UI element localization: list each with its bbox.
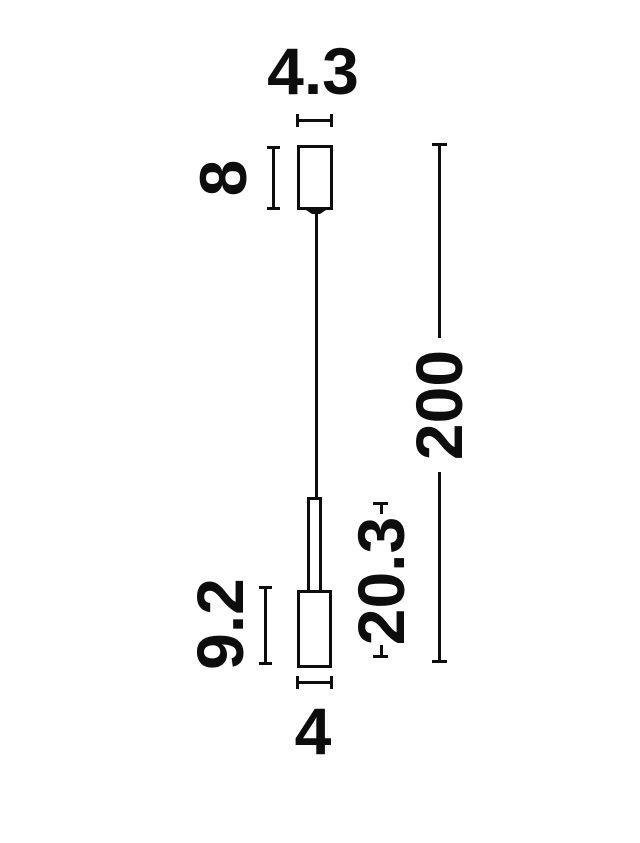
head-width-dim-tick-right — [330, 676, 333, 689]
canopy-width-dim-line — [297, 119, 332, 122]
canopy-height-dim-tick-bottom — [267, 207, 280, 210]
head-height-dim-line — [264, 588, 267, 665]
lower-assembly-dim-stem-top — [380, 502, 383, 514]
canopy-height-dim-line — [272, 147, 275, 209]
canopy-height-dim-tick-top — [267, 146, 280, 149]
head-height-dim-tick-bottom — [259, 662, 272, 665]
total-drop-dim-tick-bottom — [432, 660, 447, 663]
head-width-dim-tick-left — [296, 676, 299, 689]
canopy-height-label: 8 — [190, 160, 256, 197]
total-drop-label: 200 — [406, 350, 472, 460]
head-width-dim-line — [297, 681, 332, 684]
dimension-drawing-canvas: 4.3 8 9.2 4 20.3 200 — [0, 0, 640, 843]
canopy-width-dim-tick-left — [296, 114, 299, 127]
head-height-label: 9.2 — [187, 578, 253, 670]
total-drop-dim-line-upper — [438, 145, 441, 338]
head-width-label: 4 — [295, 698, 332, 764]
canopy-width-dim-tick-right — [330, 114, 333, 127]
total-drop-dim-line-lower — [438, 472, 441, 662]
lower-assembly-dim-tick-bottom — [373, 655, 388, 658]
lamp-head-outline — [297, 590, 332, 668]
suspension-cable — [315, 214, 319, 500]
canopy-outline — [297, 145, 333, 210]
head-height-dim-tick-top — [259, 586, 272, 589]
stem-tube-outline — [307, 497, 322, 593]
canopy-width-label: 4.3 — [267, 38, 359, 104]
lower-assembly-height-label: 20.3 — [348, 517, 414, 645]
